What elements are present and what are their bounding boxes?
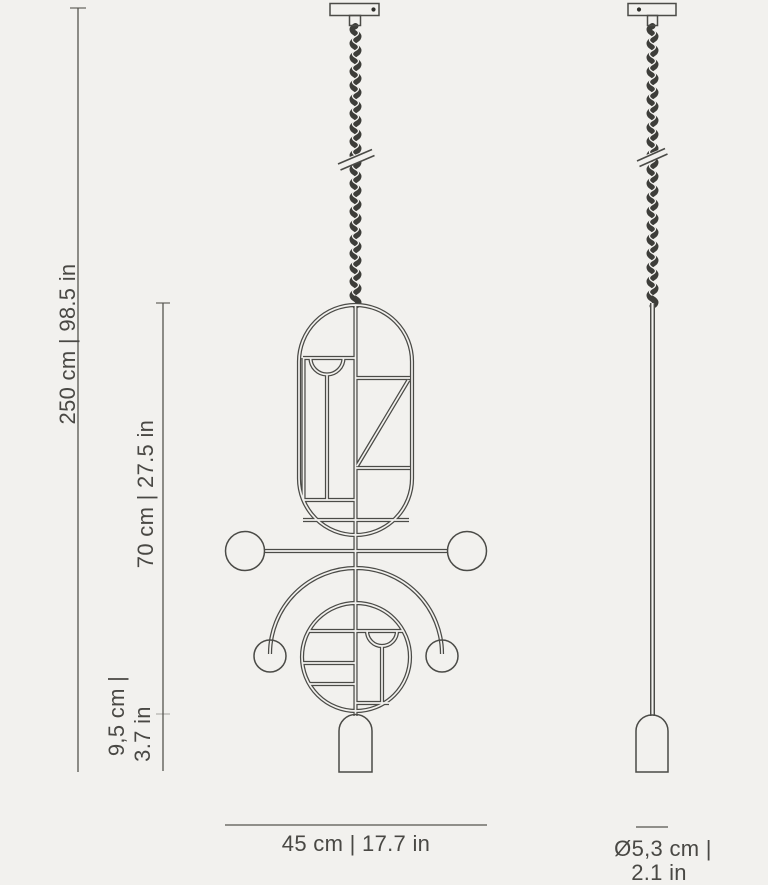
overall-height-label: 250 cm | 98.5 in bbox=[55, 264, 80, 425]
dim-shade-height: 9,5 cm | 3.7 in bbox=[104, 676, 155, 762]
front-view bbox=[226, 4, 487, 773]
canopy-screw-dot-side bbox=[637, 7, 641, 11]
arm-sphere-left bbox=[226, 532, 265, 571]
dim-body-height: 70 cm | 27.5 in bbox=[133, 303, 170, 771]
shade-diameter-label-line1: Ø5,3 cm | bbox=[614, 836, 712, 861]
dimension-diagram: 250 cm | 98.5 in 70 cm | 27.5 in 9,5 cm … bbox=[0, 0, 768, 885]
arm-sphere-right bbox=[448, 532, 487, 571]
shade-diameter-label-line2: 2.1 in bbox=[631, 860, 687, 885]
dim-shade-diameter: Ø5,3 cm | 2.1 in bbox=[614, 827, 712, 885]
twisted-cord bbox=[353, 26, 359, 306]
bottom-shade-side bbox=[636, 715, 668, 772]
shade-height-label-line2: 3.7 in bbox=[130, 706, 155, 762]
side-view bbox=[628, 4, 676, 773]
pendant-lamp-dimension-sheet: 250 cm | 98.5 in 70 cm | 27.5 in 9,5 cm … bbox=[0, 0, 768, 885]
width-label: 45 cm | 17.7 in bbox=[282, 831, 430, 856]
lamp-frame-tubes-core bbox=[265, 305, 448, 716]
ceiling-canopy bbox=[330, 4, 379, 26]
dim-width: 45 cm | 17.7 in bbox=[225, 825, 487, 856]
shade-height-label-line1: 9,5 cm | bbox=[104, 676, 129, 756]
canopy-screw-dot bbox=[371, 7, 375, 11]
ceiling-canopy-side bbox=[628, 4, 676, 26]
bottom-shade-front bbox=[339, 715, 372, 773]
body-height-label: 70 cm | 27.5 in bbox=[133, 420, 158, 568]
dim-overall-height: 250 cm | 98.5 in bbox=[55, 8, 86, 772]
twisted-cord-side bbox=[650, 26, 656, 306]
